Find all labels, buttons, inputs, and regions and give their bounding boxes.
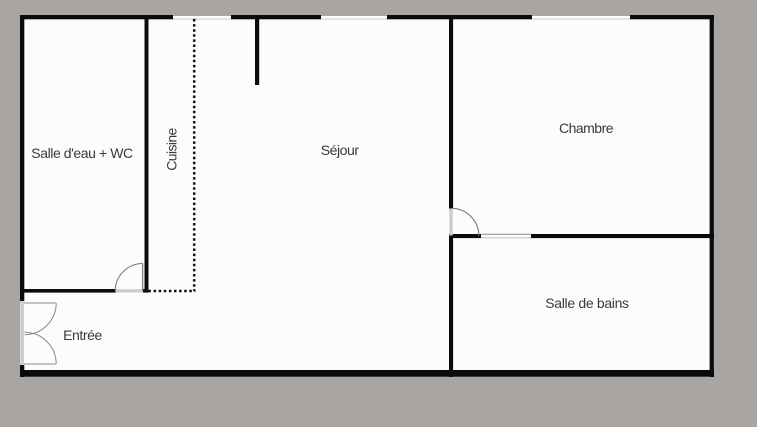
svg-text:Entrée: Entrée bbox=[63, 327, 102, 343]
svg-text:Chambre: Chambre bbox=[559, 120, 614, 136]
svg-text:Séjour: Séjour bbox=[321, 142, 360, 158]
svg-text:Salle d'eau + WC: Salle d'eau + WC bbox=[31, 145, 133, 161]
svg-text:Cuisine: Cuisine bbox=[164, 127, 180, 170]
svg-text:Salle de bains: Salle de bains bbox=[545, 295, 629, 311]
